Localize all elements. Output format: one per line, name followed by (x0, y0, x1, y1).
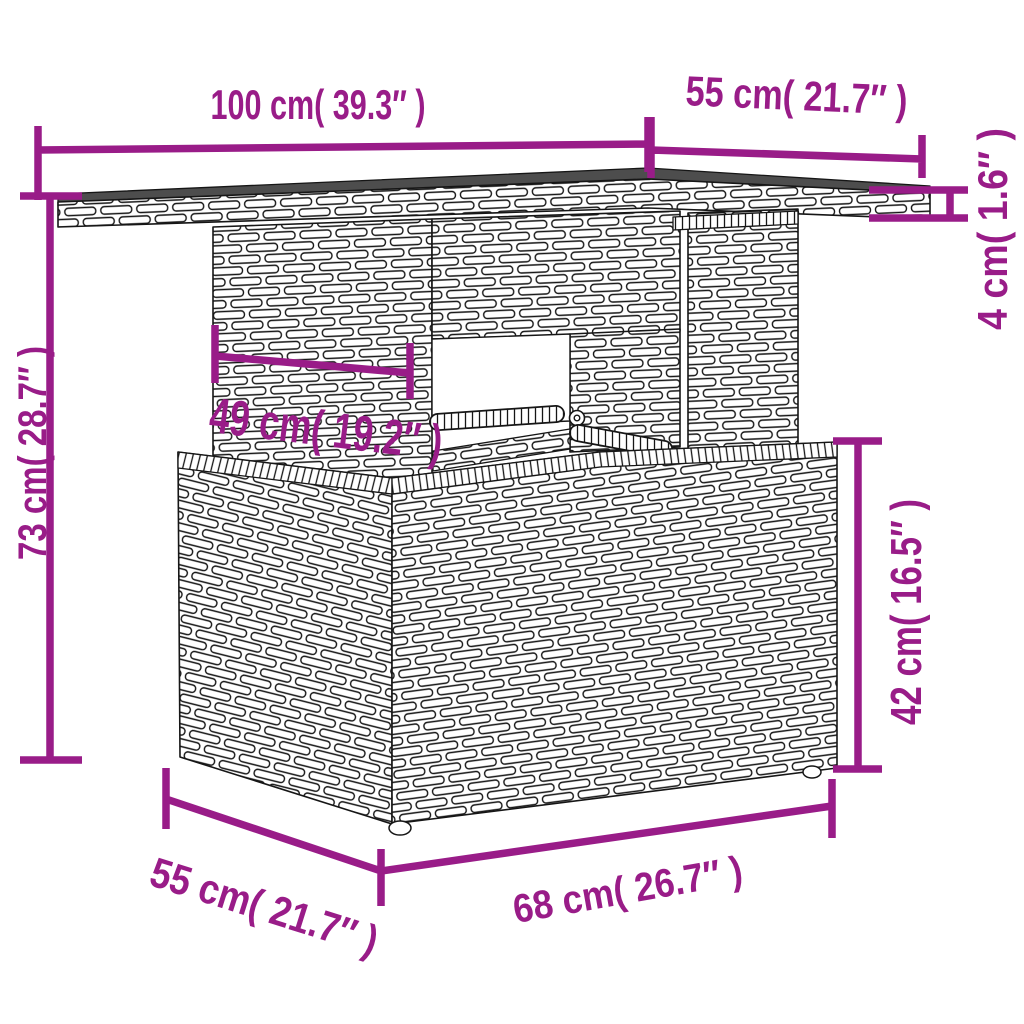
rail-joint-pin (574, 415, 580, 421)
base-right-face (392, 442, 837, 824)
dimension-base-height: 42 cm( 16.5″ ) (833, 441, 931, 769)
dimension-top-depth-label: 55 cm( 21.7″ ) (685, 67, 909, 124)
table-illustration (58, 168, 930, 835)
table-foot-front (389, 821, 411, 835)
dimension-top-width-label: 100 cm( 39.3″ ) (211, 81, 426, 128)
pedestal-right-panel (688, 209, 798, 450)
dimension-top-depth-lines (651, 117, 922, 178)
dimension-base-height-label: 42 cm( 16.5″ ) (882, 499, 931, 725)
dimension-total-height-label: 73 cm( 28.7″ ) (11, 346, 55, 560)
dimension-top-thickness-label: 4 cm( 1.6″ ) (969, 128, 1016, 330)
dimension-base-depth-label: 55 cm( 21.7″ ) (145, 848, 384, 964)
dimension-base-width-label: 68 cm( 26.7″ ) (510, 848, 746, 932)
base-rail-left (438, 414, 556, 422)
base-left-face (178, 452, 392, 824)
table-foot-right (803, 766, 821, 778)
diagram-canvas: 100 cm( 39.3″ ) 55 cm( 21.7″ ) 4 cm( 1.6… (0, 0, 1024, 1024)
dimension-total-height: 73 cm( 28.7″ ) (11, 196, 82, 760)
dimension-diagram: 100 cm( 39.3″ ) 55 cm( 21.7″ ) 4 cm( 1.6… (0, 0, 1024, 1024)
pedestal-top-rail (432, 211, 680, 339)
dimension-base-height-lines (833, 441, 882, 769)
dimension-top-depth: 55 cm( 21.7″ ) (651, 67, 922, 178)
